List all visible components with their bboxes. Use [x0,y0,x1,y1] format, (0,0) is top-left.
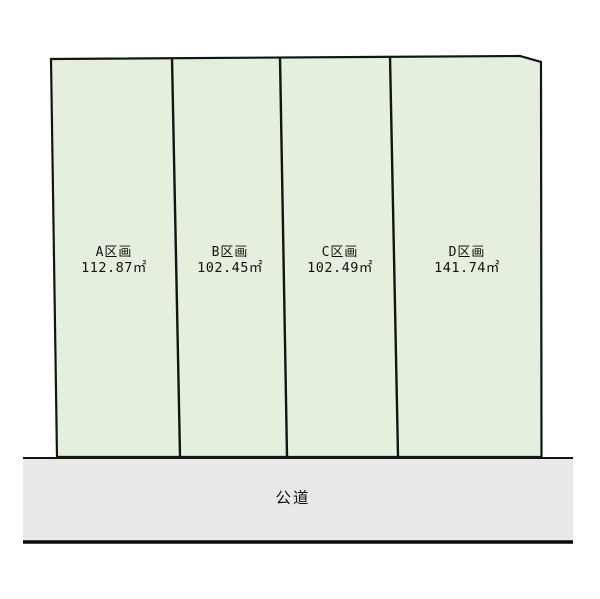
parcel-c-name: C区画 [322,245,359,260]
parcel-a-name: A区画 [96,245,133,260]
road-label: 公道 [275,489,310,507]
parcel-b-name: B区画 [212,245,249,260]
parcel-c-area: 102.49㎡ [307,260,373,276]
parcel-a-area: 112.87㎡ [81,260,147,276]
parcel-d-area: 141.74㎡ [434,260,500,276]
road-band-group: 公道 [23,458,573,542]
land-plot-diagram: 公道 A区画 112.87㎡ B区画 102.45㎡ C区画 102.49㎡ D… [0,0,600,599]
diagram-canvas: 公道 A区画 112.87㎡ B区画 102.45㎡ C区画 102.49㎡ D… [0,0,600,599]
parcel-b-area: 102.45㎡ [197,260,263,276]
parcel-d-name: D区画 [449,245,486,260]
